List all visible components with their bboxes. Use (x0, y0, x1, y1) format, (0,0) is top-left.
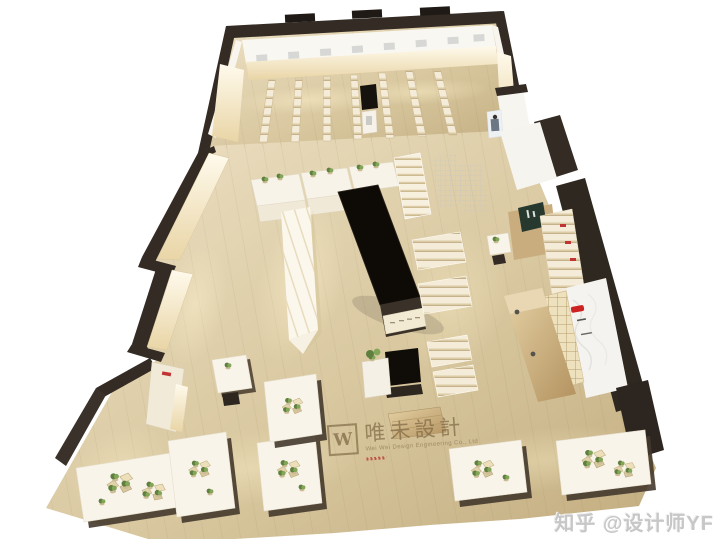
display-table (556, 430, 656, 501)
planter-box (362, 358, 391, 398)
display-table (257, 435, 327, 517)
poster-figure (493, 115, 497, 119)
gondola-row (323, 77, 331, 141)
display-table (449, 440, 532, 507)
black-cube-display (362, 348, 423, 398)
display-table (264, 374, 327, 448)
register (531, 352, 536, 357)
store-interior-render: W 唯未設計 Wei Wei Design Engineering Co., L… (0, 0, 720, 540)
chair (222, 392, 240, 406)
black-column (360, 84, 378, 110)
register (515, 310, 520, 315)
display-table (168, 432, 240, 523)
store-render-canvas (0, 0, 720, 540)
